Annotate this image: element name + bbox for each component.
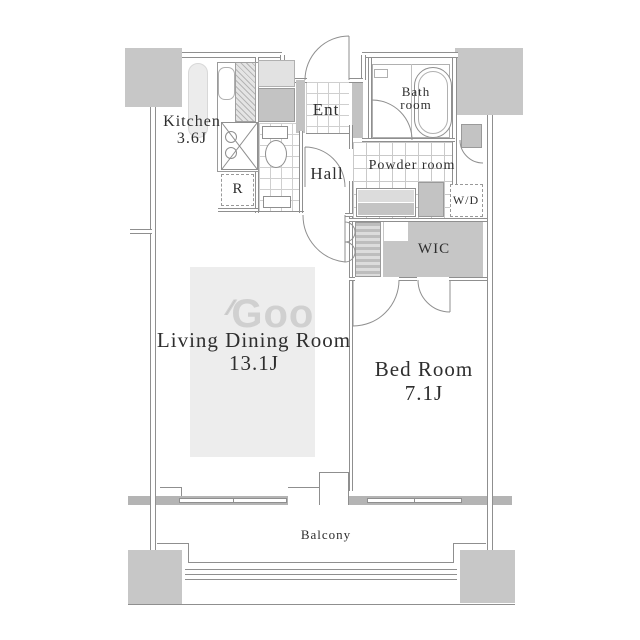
wall-wic-bedroom — [449, 277, 487, 281]
label-refrigerator: R — [232, 181, 243, 198]
balcony-floor-line — [188, 543, 189, 563]
wic-door-arc — [418, 280, 450, 312]
balcony-floor-line — [157, 543, 188, 544]
room-label-balcony: Balcony — [301, 527, 351, 543]
powder-shelf — [461, 124, 482, 148]
room-label-powder-room: Powder room — [369, 158, 456, 174]
wall-right — [487, 115, 493, 550]
wall-bath-powder — [362, 138, 455, 142]
vanity-cabinet — [358, 203, 414, 215]
wall-entrance-bath — [352, 83, 363, 138]
wall-wic-bedroom — [349, 277, 355, 281]
toilet-bottom-line — [257, 211, 304, 212]
kitchen-stove — [221, 122, 258, 170]
room-label-living-dining: Living Dining Room 13.1J — [157, 329, 351, 375]
toilet-shelf — [263, 196, 291, 208]
kitchen-hatched-cabinet — [235, 62, 256, 122]
wall-top-left — [182, 52, 282, 58]
living-room-door-arc — [303, 215, 345, 262]
powder-room-name: Powder room — [369, 158, 456, 174]
wall-kitchen-stub — [218, 208, 258, 212]
entrance-door-arc — [305, 36, 349, 80]
room-label-hall: Hall — [310, 164, 343, 184]
pillar-bottom-right — [460, 550, 515, 603]
wall-left — [150, 107, 156, 550]
wall-toilet-entrance — [296, 80, 305, 133]
kitchen-sink — [218, 67, 235, 100]
wall-wic-bedroom — [399, 277, 417, 281]
living-window-panel-1 — [179, 498, 234, 503]
closet-shelves — [355, 222, 381, 277]
balcony-floor-line — [453, 543, 486, 544]
living-dining-size: 13.1J — [157, 352, 351, 375]
pillar-top-left — [125, 48, 182, 107]
room-label-wic: WIC — [418, 241, 450, 258]
entrance-step-line — [306, 133, 349, 134]
wall-step — [361, 55, 366, 80]
pillar-top-right — [455, 48, 523, 115]
wall-hall-stub — [345, 213, 353, 217]
entrance-name: Ent — [313, 100, 340, 120]
bedroom-window-panel-1 — [367, 498, 415, 503]
washer-dryer-name: W/D — [453, 193, 479, 208]
wall-hall-powder-upper — [349, 125, 353, 149]
wall-corridor-closet — [349, 222, 353, 277]
wall-window-step-left — [160, 487, 182, 496]
balcony-floor-line — [188, 562, 453, 563]
room-label-entrance: Ent — [313, 100, 340, 120]
wic-notch — [384, 222, 408, 241]
living-window-panel-2 — [233, 498, 287, 503]
toilet-tank — [262, 126, 288, 139]
balcony-outer-line — [128, 604, 515, 605]
storage-cabinet-lower — [258, 88, 295, 122]
wall-living-bedroom — [349, 277, 353, 491]
stove-burner — [225, 147, 237, 159]
floor-plan: ⁄⁄Goo Kitchen 3.6J Ent Bath room Hall Po… — [0, 0, 640, 640]
toilet-bowl — [265, 140, 287, 168]
pillar-bottom-left — [128, 550, 182, 605]
stove-burner — [225, 131, 237, 143]
bedroom-name: Bed Room — [375, 357, 473, 381]
kitchen-name: Kitchen — [163, 113, 221, 130]
refrigerator-name: R — [232, 181, 243, 198]
balcony-floor-line — [453, 543, 454, 563]
window-wall-notch — [319, 472, 349, 505]
wall-toilet-hall — [299, 131, 303, 213]
vanity-counter — [358, 190, 414, 202]
room-label-kitchen: Kitchen 3.6J — [163, 113, 221, 147]
balcony-railing-line — [185, 579, 457, 580]
living-dining-name: Living Dining Room — [157, 329, 351, 352]
balcony-railing-line — [185, 574, 457, 575]
washbasin-cabinet — [418, 182, 444, 217]
bedroom-size: 7.1J — [375, 381, 473, 405]
storage-cabinet-upper — [258, 60, 295, 87]
room-label-washer-dryer: W/D — [453, 193, 479, 208]
balcony-railing-line — [185, 569, 457, 570]
wall-powder-wic — [349, 218, 487, 222]
bathroom-name-2: room — [400, 98, 431, 111]
kitchen-size: 3.6J — [163, 130, 221, 147]
window-wall-step — [288, 487, 320, 505]
wall-tick-left — [130, 229, 152, 234]
balcony-name: Balcony — [301, 527, 351, 543]
bedroom-door-arc — [353, 280, 399, 326]
room-label-bedroom: Bed Room 7.1J — [375, 357, 473, 405]
wic-name: WIC — [418, 241, 450, 258]
wall-top-right — [362, 52, 458, 58]
hall-name: Hall — [310, 164, 343, 184]
bath-counter — [374, 69, 388, 78]
bedroom-window-panel-2 — [414, 498, 462, 503]
room-label-bathroom: Bath room — [400, 85, 431, 111]
